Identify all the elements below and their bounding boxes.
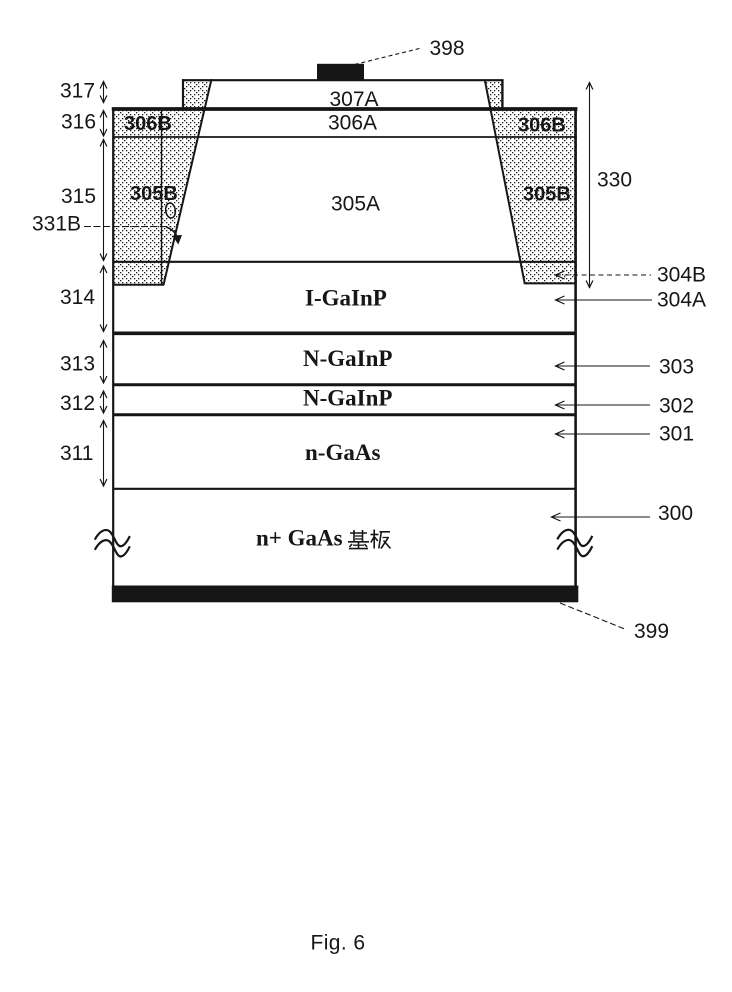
svg-text:305B: 305B — [130, 183, 178, 205]
svg-text:301: 301 — [659, 423, 694, 446]
svg-text:312: 312 — [60, 392, 95, 415]
svg-text:307A: 307A — [330, 88, 379, 111]
svg-text:306B: 306B — [518, 115, 566, 137]
svg-text:315: 315 — [61, 185, 96, 208]
svg-text:300: 300 — [658, 502, 693, 525]
svg-text:314: 314 — [60, 286, 95, 309]
svg-text:n-GaAs: n-GaAs — [305, 440, 380, 465]
svg-text:305B: 305B — [523, 183, 571, 205]
svg-text:330: 330 — [597, 169, 632, 192]
svg-text:331B: 331B — [32, 213, 81, 236]
svg-text:N-GaInP: N-GaInP — [303, 346, 392, 371]
svg-text:306B: 306B — [124, 113, 172, 135]
svg-text:Fig. 6: Fig. 6 — [311, 932, 366, 955]
svg-text:399: 399 — [634, 620, 669, 643]
svg-text:304A: 304A — [657, 289, 706, 312]
svg-text:305A: 305A — [331, 193, 380, 216]
svg-text:311: 311 — [60, 442, 93, 465]
svg-text:I-GaInP: I-GaInP — [305, 286, 387, 311]
svg-text:n+ GaAs: n+ GaAs — [256, 526, 343, 551]
svg-text:N-GaInP: N-GaInP — [303, 386, 392, 411]
svg-text:313: 313 — [60, 353, 95, 376]
svg-text:303: 303 — [659, 356, 694, 379]
svg-text:398: 398 — [430, 37, 465, 60]
svg-text:317: 317 — [60, 80, 95, 103]
svg-text:304B: 304B — [657, 264, 706, 287]
svg-text:316: 316 — [61, 111, 96, 134]
svg-text:302: 302 — [659, 395, 694, 418]
svg-text:306A: 306A — [328, 112, 377, 135]
